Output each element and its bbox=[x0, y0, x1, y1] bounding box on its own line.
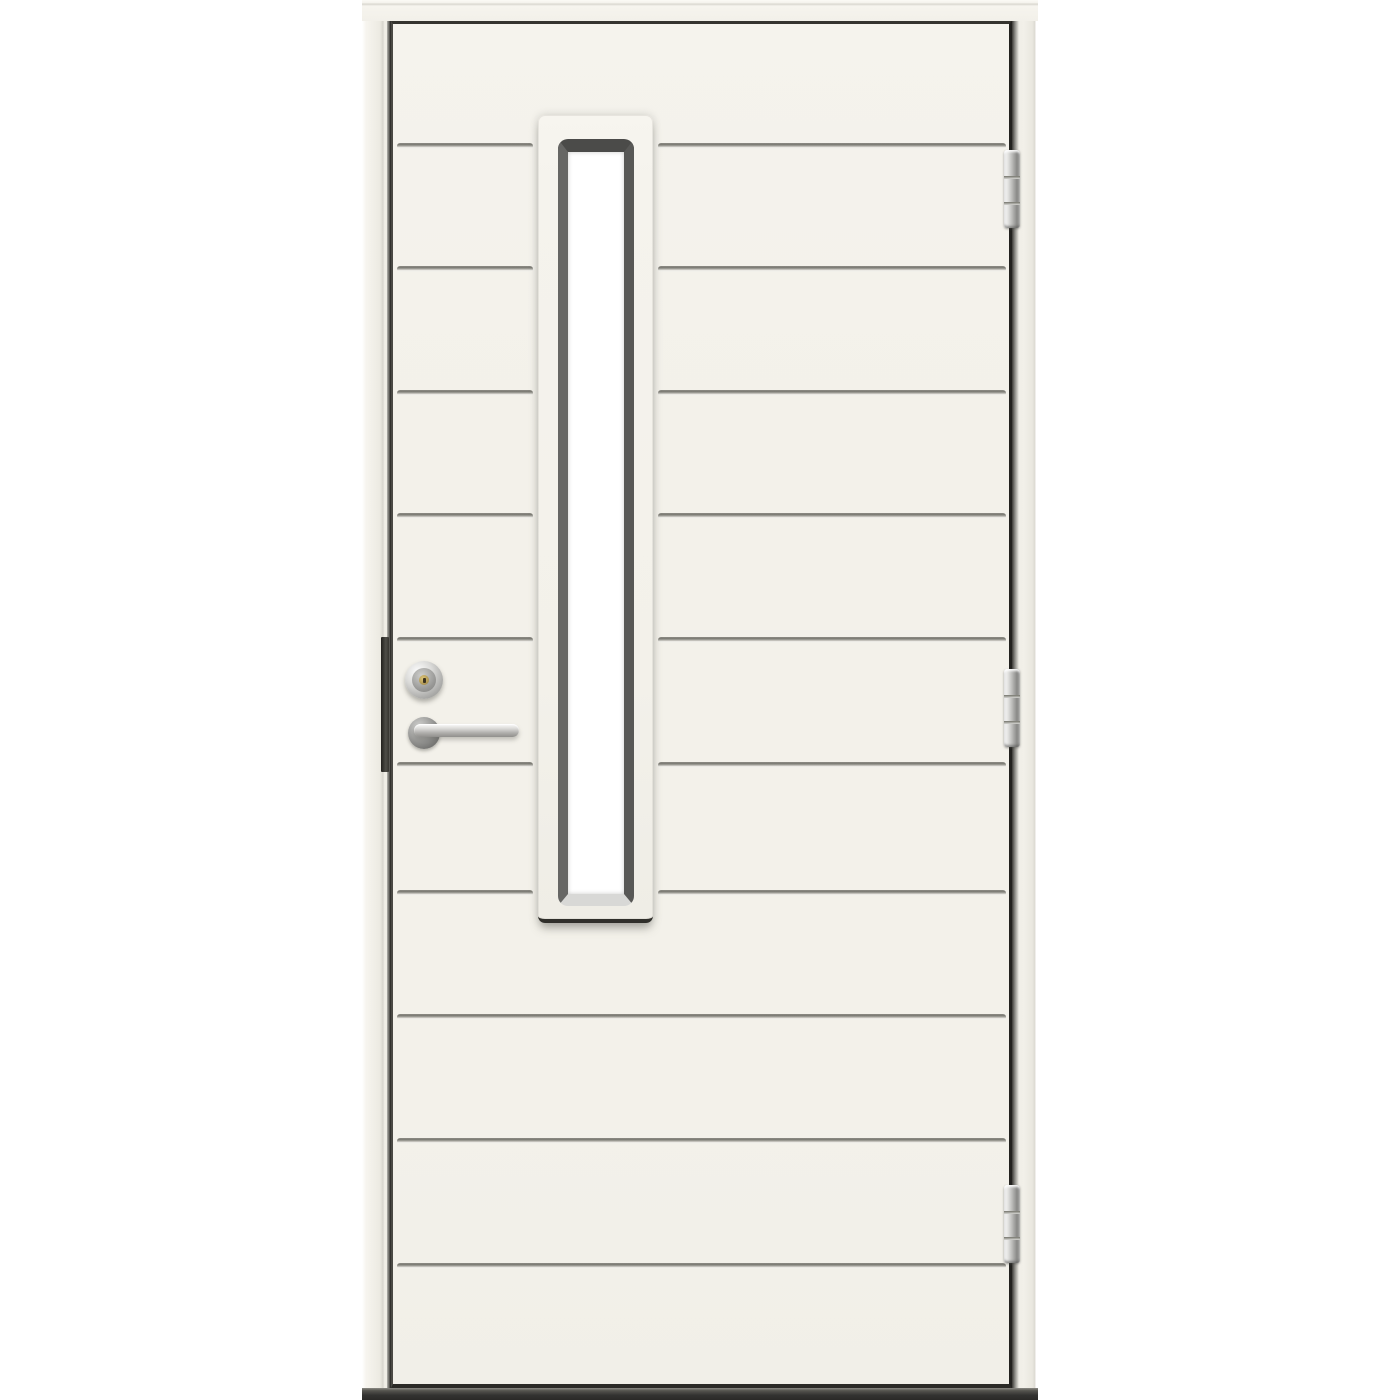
panel-groove bbox=[658, 143, 1006, 149]
panel-groove bbox=[397, 1263, 1006, 1269]
panel-groove bbox=[658, 513, 1006, 519]
hinge-knuckle-line bbox=[1004, 202, 1020, 205]
panel-groove bbox=[397, 762, 533, 768]
glazing-glass bbox=[558, 139, 634, 906]
keyhole bbox=[419, 675, 429, 685]
door-product-photo bbox=[0, 0, 1400, 1400]
panel-groove bbox=[658, 890, 1006, 896]
panel-groove bbox=[397, 266, 533, 272]
door-leaf bbox=[391, 21, 1012, 1388]
panel-groove bbox=[658, 762, 1006, 768]
panel-groove bbox=[397, 1014, 1006, 1020]
door-handle-lever bbox=[414, 724, 519, 737]
panel-groove bbox=[658, 390, 1006, 396]
panel-groove bbox=[397, 1138, 1006, 1144]
panel-groove bbox=[397, 637, 533, 643]
hinge-middle bbox=[1004, 669, 1020, 747]
hinge-knuckle-line bbox=[1004, 176, 1020, 179]
hinge-knuckle-line bbox=[1004, 1237, 1020, 1240]
door-frame-head bbox=[362, 0, 1038, 21]
panel-groove bbox=[397, 513, 533, 519]
hinge-knuckle-line bbox=[1004, 695, 1020, 698]
hinge-knuckle-line bbox=[1004, 1211, 1020, 1214]
lock-edge-plate bbox=[381, 637, 389, 772]
lock-cylinder-core bbox=[412, 668, 436, 692]
door-threshold bbox=[362, 1388, 1038, 1400]
panel-groove bbox=[658, 266, 1006, 272]
panel-groove bbox=[397, 390, 533, 396]
keyhole-slot bbox=[423, 678, 426, 683]
panel-groove bbox=[397, 143, 533, 149]
panel-groove bbox=[397, 890, 533, 896]
hinge-knuckle-line bbox=[1004, 721, 1020, 724]
hinge-top bbox=[1004, 150, 1020, 228]
hinge-bottom bbox=[1004, 1185, 1020, 1263]
lock-cylinder bbox=[405, 661, 443, 699]
panel-groove bbox=[658, 637, 1006, 643]
